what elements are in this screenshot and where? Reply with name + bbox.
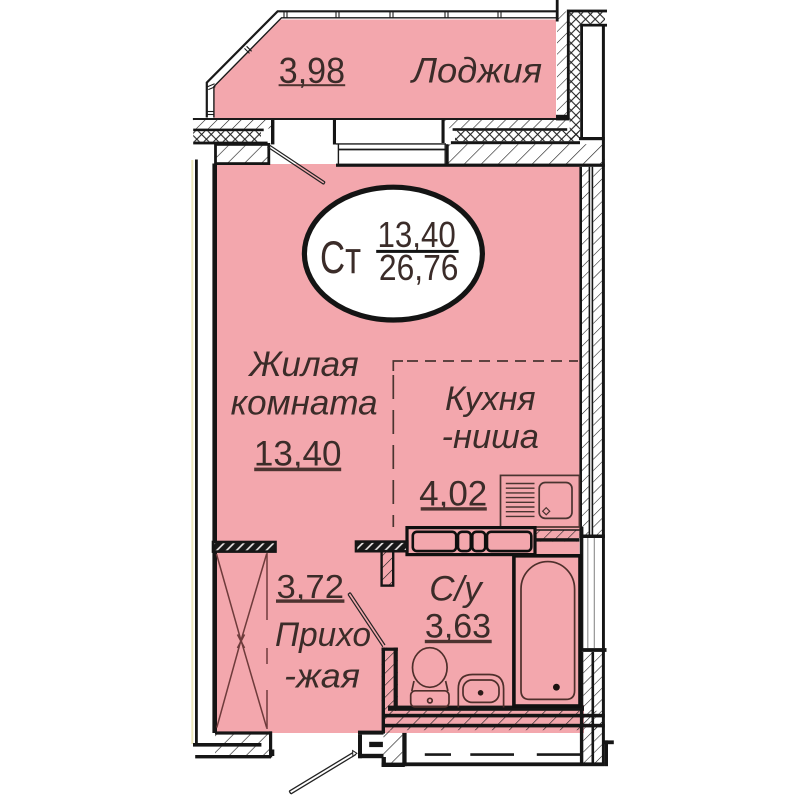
svg-text:комната: комната bbox=[231, 383, 378, 422]
svg-text:13,40: 13,40 bbox=[254, 434, 342, 473]
svg-text:Лоджия: Лоджия bbox=[410, 52, 542, 91]
svg-text:Жилая: Жилая bbox=[247, 345, 358, 384]
svg-text:-жая: -жая bbox=[284, 658, 360, 696]
svg-text:Прихо: Прихо bbox=[275, 616, 371, 654]
svg-text:С/у: С/у bbox=[429, 570, 484, 609]
svg-text:26,76: 26,76 bbox=[379, 247, 459, 288]
svg-text:Ст: Ст bbox=[320, 232, 361, 283]
svg-text:-ниша: -ниша bbox=[442, 418, 540, 456]
svg-text:Кухня: Кухня bbox=[445, 380, 536, 418]
